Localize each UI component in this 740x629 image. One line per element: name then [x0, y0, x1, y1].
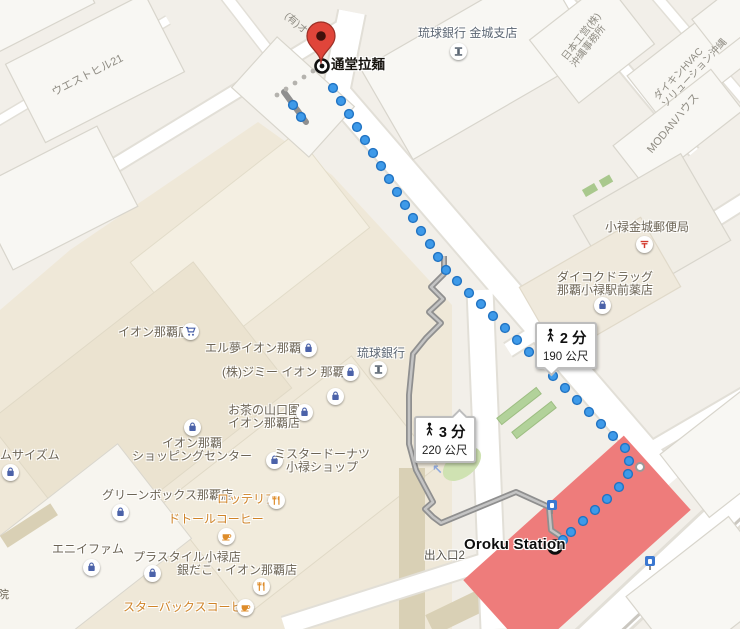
- route-time: 2 分: [560, 327, 587, 348]
- destination-pin-icon[interactable]: [303, 21, 339, 72]
- route-distance: 190 公尺: [543, 348, 588, 364]
- cafe-icon[interactable]: [237, 599, 254, 616]
- cart-icon[interactable]: [182, 323, 199, 340]
- shopping-bag-icon[interactable]: [83, 559, 100, 576]
- walking-person-icon: [424, 422, 435, 441]
- map-tiles: [0, 0, 740, 629]
- station-label[interactable]: Oroku Station: [464, 538, 566, 551]
- poi-label-line: 小禄ショップ: [274, 461, 370, 474]
- cafe-icon[interactable]: [218, 528, 235, 545]
- post-office-icon[interactable]: [636, 236, 653, 253]
- shopping-bag-icon[interactable]: [594, 297, 611, 314]
- poi-eruyume-aeon[interactable]: エル夢イオン那覇店: [205, 342, 313, 355]
- poi-label-line: ショッピングセンター: [132, 450, 252, 463]
- poi-daikoku-drug[interactable]: ダイコクドラッグ 那覇小禄駅前薬店: [557, 271, 653, 297]
- poi-ryukyu-bank-small[interactable]: 琉球銀行: [357, 347, 405, 360]
- poi-aeon-naha[interactable]: イオン那覇店: [118, 326, 190, 339]
- bank-icon[interactable]: [450, 43, 467, 60]
- poi-aeon-shopping-center[interactable]: イオン那覇 ショッピングセンター: [132, 437, 252, 463]
- station-exit-label: 出入口2: [424, 550, 465, 563]
- route-bubble-2min[interactable]: 2 分 190 公尺: [535, 322, 597, 369]
- poi-doutor-coffee[interactable]: ドトールコーヒー: [168, 513, 264, 526]
- poi-label-line: イオン那覇店: [228, 417, 300, 430]
- poi-musaizumu[interactable]: ムサイズム: [0, 449, 60, 462]
- poi-gindaco[interactable]: 銀だこ・イオン那覇店: [177, 564, 297, 577]
- shopping-bag-icon[interactable]: [112, 504, 129, 521]
- destination-label[interactable]: 通堂拉麺: [331, 58, 385, 71]
- restaurant-icon[interactable]: [268, 492, 285, 509]
- poi-label-line: 那覇小禄駅前薬店: [557, 284, 653, 297]
- poi-mister-donut[interactable]: ミスタードーナツ 小禄ショップ: [274, 448, 370, 474]
- shopping-bag-icon[interactable]: [300, 340, 317, 357]
- station-entrance-icon: [645, 556, 655, 570]
- poi-greenbox[interactable]: グリーンボックス那覇店: [102, 489, 233, 502]
- restaurant-icon[interactable]: [253, 578, 270, 595]
- poi-jimmy-aeon[interactable]: (株)ジミー イオン 那覇店: [222, 366, 357, 379]
- poi-oroku-post-office[interactable]: 小禄金城郵便局: [605, 221, 689, 234]
- station-entrance-icon: [547, 500, 557, 514]
- area-label-hospital: 院: [0, 589, 9, 602]
- poi-ryukyu-bank-kanagusuku[interactable]: 琉球銀行 金城支店: [418, 27, 517, 40]
- map-canvas[interactable]: ウエストヒル21 (有)オフィス 日本工営(株) 沖縄事務所 ダイキンHVAC …: [0, 0, 740, 629]
- route-bubble-3min[interactable]: 3 分 220 公尺: [414, 416, 476, 463]
- one-way-arrow-icon: ↖: [432, 462, 443, 478]
- poi-starbucks[interactable]: スターバックスコーヒー: [123, 601, 255, 614]
- bank-icon[interactable]: [370, 361, 387, 378]
- shopping-bag-icon[interactable]: [327, 388, 344, 405]
- shopping-bag-icon[interactable]: [2, 464, 19, 481]
- route-distance: 220 公尺: [422, 442, 467, 458]
- walking-person-icon: [545, 328, 556, 347]
- shopping-bag-icon[interactable]: [184, 419, 201, 436]
- poi-anyfam[interactable]: エニイファム: [52, 543, 124, 556]
- shopping-bag-icon[interactable]: [296, 404, 313, 421]
- shopping-bag-icon[interactable]: [144, 565, 161, 582]
- route-time: 3 分: [439, 421, 466, 442]
- poi-ochanoyamaguchien[interactable]: お茶の山口園 イオン那覇店: [228, 404, 300, 430]
- shopping-bag-icon[interactable]: [342, 364, 359, 381]
